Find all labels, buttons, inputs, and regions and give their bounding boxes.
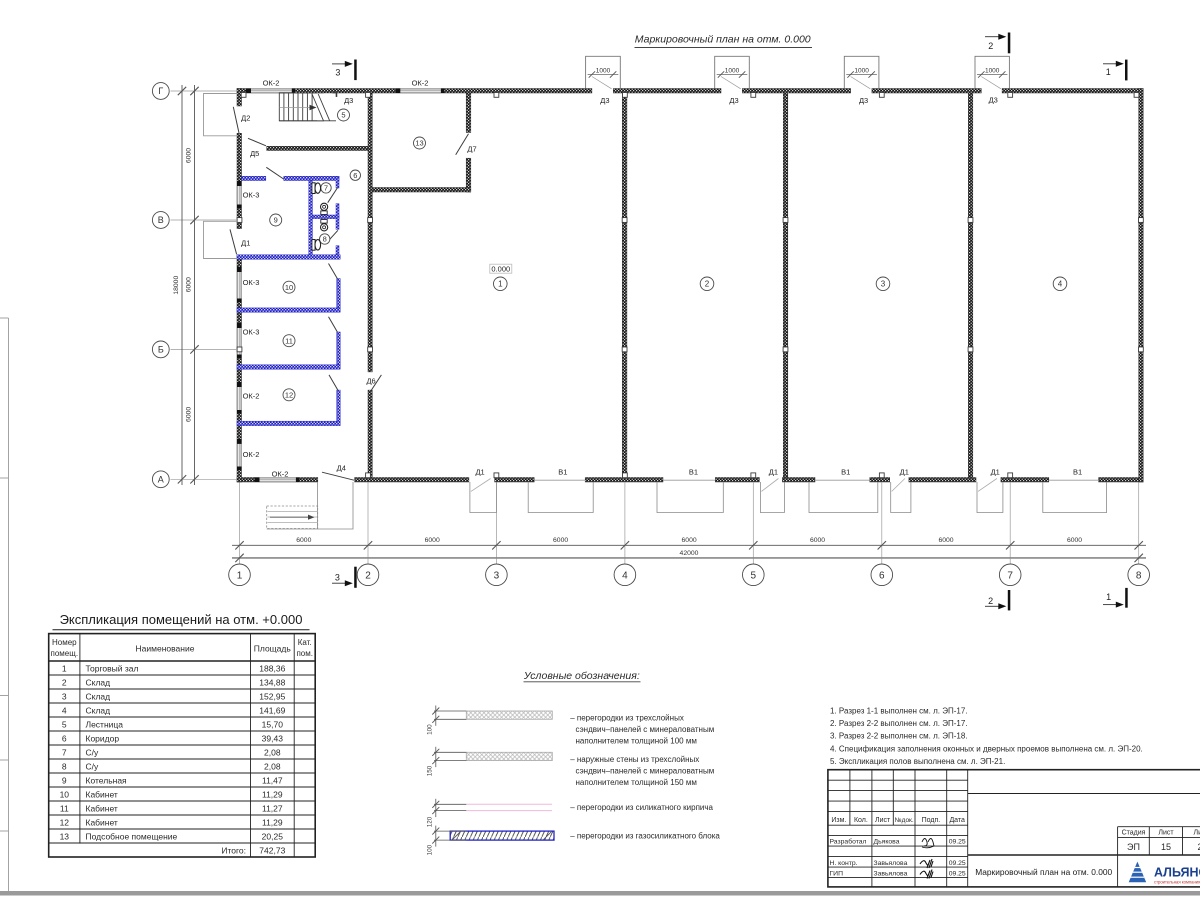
svg-text:С/у: С/у: [86, 748, 100, 758]
svg-text:Склад: Склад: [86, 678, 111, 688]
svg-text:помещ.: помещ.: [51, 649, 79, 658]
svg-text:5. Экспликация полов выполнена: 5. Экспликация полов выполнена см. л. ЭП…: [830, 757, 1005, 766]
svg-text:строительная компания: строительная компания: [1154, 880, 1200, 885]
svg-text:15,70: 15,70: [262, 720, 284, 730]
svg-text:1: 1: [498, 280, 503, 289]
svg-text:Кат.: Кат.: [298, 638, 312, 647]
svg-text:134,88: 134,88: [259, 678, 285, 688]
svg-text:5: 5: [341, 111, 345, 120]
svg-text:6000: 6000: [186, 148, 193, 163]
svg-text:Кабинет: Кабинет: [86, 790, 118, 800]
svg-text:С/у: С/у: [86, 762, 100, 772]
svg-text:188,36: 188,36: [259, 664, 285, 674]
svg-text:Дата: Дата: [949, 817, 965, 824]
svg-text:1: 1: [237, 570, 243, 581]
svg-text:8: 8: [62, 762, 67, 772]
svg-text:Г: Г: [158, 86, 163, 96]
svg-text:В1: В1: [689, 467, 698, 476]
svg-text:ОК-2: ОК-2: [243, 391, 260, 400]
svg-text:11: 11: [285, 336, 293, 345]
svg-text:ОК-2: ОК-2: [243, 450, 260, 459]
svg-text:№док.: №док.: [895, 817, 914, 824]
svg-text:Д1: Д1: [991, 467, 1000, 476]
svg-text:Д1: Д1: [475, 467, 484, 476]
svg-text:1000: 1000: [854, 67, 869, 74]
svg-text:Подп.: Подп.: [922, 817, 941, 824]
svg-text:1: 1: [1106, 592, 1111, 602]
svg-text:2: 2: [62, 678, 67, 688]
svg-text:1: 1: [1106, 67, 1111, 77]
svg-text:9: 9: [62, 776, 67, 786]
svg-text:09.25: 09.25: [949, 860, 966, 867]
svg-text:АЛЬЯНС: АЛЬЯНС: [1154, 866, 1200, 880]
svg-text:10: 10: [285, 283, 293, 292]
svg-text:Д3: Д3: [600, 96, 609, 105]
svg-text:Лестница: Лестница: [86, 720, 124, 730]
svg-text:1000: 1000: [725, 67, 740, 74]
svg-text:Листов: Листов: [1194, 829, 1200, 836]
svg-text:2,08: 2,08: [264, 762, 281, 772]
svg-text:Итого:: Итого:: [221, 846, 246, 856]
svg-text:1000: 1000: [985, 67, 1000, 74]
svg-text:Номер: Номер: [52, 638, 77, 647]
svg-text:152,95: 152,95: [259, 692, 285, 702]
svg-text:В: В: [158, 215, 164, 225]
svg-text:12: 12: [285, 391, 293, 400]
svg-text:пом.: пом.: [296, 649, 313, 658]
svg-text:7: 7: [324, 184, 328, 193]
svg-text:Лист: Лист: [875, 817, 891, 824]
svg-text:6000: 6000: [682, 537, 697, 544]
svg-text:В1: В1: [1073, 467, 1082, 476]
svg-text:6: 6: [879, 570, 885, 581]
svg-text:ОК-2: ОК-2: [412, 79, 429, 88]
svg-text:100: 100: [427, 724, 434, 735]
svg-text:6: 6: [353, 171, 357, 180]
svg-text:наполнителем толщиной 100 мм: наполнителем толщиной 100 мм: [576, 737, 697, 746]
svg-text:6000: 6000: [553, 537, 568, 544]
svg-text:Д6: Д6: [366, 376, 375, 385]
svg-text:Коридор: Коридор: [86, 734, 120, 744]
svg-text:Условные обозначения:: Условные обозначения:: [523, 670, 640, 682]
svg-text:В1: В1: [841, 467, 850, 476]
svg-text:А: А: [158, 475, 164, 485]
svg-text:Разработал: Разработал: [830, 838, 867, 846]
svg-text:11,29: 11,29: [262, 818, 283, 828]
svg-text:0.000: 0.000: [491, 265, 510, 274]
svg-text:Д5: Д5: [250, 149, 259, 158]
svg-text:Лист: Лист: [1158, 829, 1174, 836]
svg-text:ОК-3: ОК-3: [243, 327, 260, 336]
svg-text:8: 8: [1136, 570, 1142, 581]
svg-text:742,73: 742,73: [259, 846, 285, 856]
svg-text:11: 11: [60, 804, 69, 814]
svg-text:– перегородки из трехслойных: – перегородки из трехслойных: [570, 714, 684, 723]
svg-text:Кабинет: Кабинет: [86, 804, 118, 814]
svg-text:6000: 6000: [425, 537, 440, 544]
svg-text:3: 3: [335, 572, 340, 582]
svg-text:3: 3: [335, 68, 340, 78]
svg-text:2: 2: [705, 280, 710, 289]
svg-text:6000: 6000: [1067, 537, 1082, 544]
svg-text:Д1: Д1: [900, 467, 909, 476]
svg-text:ОК-2: ОК-2: [272, 470, 289, 479]
svg-text:12: 12: [60, 818, 70, 828]
svg-text:Кол.: Кол.: [854, 817, 868, 824]
svg-text:5: 5: [751, 570, 757, 581]
svg-text:3: 3: [494, 570, 500, 581]
svg-text:Площадь: Площадь: [254, 644, 292, 654]
svg-text:7: 7: [1007, 570, 1013, 581]
svg-text:Котельная: Котельная: [86, 776, 128, 786]
svg-text:Склад: Склад: [86, 692, 111, 702]
svg-text:1: 1: [62, 664, 67, 674]
svg-text:– перегородки из силикатного к: – перегородки из силикатного кирпича: [570, 803, 713, 812]
svg-text:2: 2: [988, 41, 993, 51]
svg-text:Подсобное помещение: Подсобное помещение: [86, 832, 178, 842]
svg-text:13: 13: [60, 832, 70, 842]
svg-text:ОК-2: ОК-2: [263, 79, 280, 88]
svg-text:2: 2: [988, 596, 993, 606]
svg-text:39,43: 39,43: [262, 734, 284, 744]
svg-text:В1: В1: [558, 467, 567, 476]
svg-text:4: 4: [622, 570, 628, 581]
svg-text:Н. контр.: Н. контр.: [830, 860, 858, 867]
svg-text:4: 4: [1058, 280, 1063, 289]
svg-text:ОК-3: ОК-3: [243, 278, 260, 287]
svg-text:42000: 42000: [680, 550, 699, 557]
svg-text:20,25: 20,25: [262, 832, 284, 842]
svg-text:ЭП: ЭП: [1127, 842, 1140, 852]
svg-text:3. Разрез 2-2 выполнен см. л.: 3. Разрез 2-2 выполнен см. л. ЭП-18.: [830, 732, 968, 741]
svg-text:1000: 1000: [596, 67, 611, 74]
svg-text:ГИП: ГИП: [830, 870, 844, 877]
svg-text:наполнителем толщиной 150 мм: наполнителем толщиной 150 мм: [576, 778, 697, 787]
svg-text:Б: Б: [158, 345, 164, 355]
svg-text:09.25: 09.25: [949, 839, 966, 846]
svg-text:4: 4: [62, 706, 67, 716]
svg-text:Кабинет: Кабинет: [86, 818, 118, 828]
svg-text:– наружные стены из трехслойны: – наружные стены из трехслойных: [570, 755, 699, 764]
svg-text:Д3: Д3: [729, 96, 738, 105]
svg-text:Д3: Д3: [344, 96, 353, 105]
svg-text:Торговый зал: Торговый зал: [86, 664, 139, 674]
svg-text:Наименование: Наименование: [136, 644, 195, 654]
svg-text:Д3: Д3: [859, 96, 868, 105]
svg-text:18000: 18000: [173, 276, 180, 295]
svg-text:Завьялова: Завьялова: [874, 860, 908, 867]
svg-text:5: 5: [62, 720, 67, 730]
svg-text:11,29: 11,29: [262, 790, 283, 800]
svg-text:Дьякова: Дьякова: [874, 839, 900, 846]
svg-text:3: 3: [62, 692, 67, 702]
svg-text:100: 100: [427, 844, 434, 855]
svg-text:Завьялова: Завьялова: [874, 870, 908, 877]
svg-text:8: 8: [323, 235, 327, 244]
svg-text:3: 3: [881, 280, 886, 289]
svg-text:6000: 6000: [186, 277, 193, 292]
svg-text:Д2: Д2: [241, 114, 250, 123]
svg-text:09.25: 09.25: [949, 870, 966, 877]
svg-text:Маркировочный план на отм. 0.0: Маркировочный план на отм. 0.000: [975, 867, 1112, 877]
svg-text:Д1: Д1: [241, 238, 250, 247]
svg-text:Экспликация помещений на отм.: Экспликация помещений на отм. +0.000: [60, 612, 303, 627]
svg-text:сэндвич–панелей с минераловатн: сэндвич–панелей с минераловатным: [576, 725, 715, 734]
svg-text:7: 7: [62, 748, 67, 758]
svg-text:ОК-3: ОК-3: [243, 190, 260, 199]
svg-text:4. Спецификация заполнения око: 4. Спецификация заполнения оконных и две…: [830, 744, 1143, 753]
svg-text:2,08: 2,08: [264, 748, 281, 758]
svg-text:6000: 6000: [938, 537, 953, 544]
svg-text:10: 10: [60, 790, 70, 800]
svg-text:6000: 6000: [810, 537, 825, 544]
svg-text:2: 2: [365, 570, 371, 581]
svg-text:1. Разрез 1-1 выполнен см. л.: 1. Разрез 1-1 выполнен см. л. ЭП-17.: [830, 707, 968, 716]
svg-text:сэндвич–панелей с минераловатн: сэндвич–панелей с минераловатным: [576, 766, 715, 775]
svg-text:120: 120: [427, 816, 434, 827]
svg-text:141,69: 141,69: [259, 706, 285, 716]
svg-text:Д7: Д7: [467, 144, 476, 153]
svg-text:11,27: 11,27: [262, 804, 283, 814]
svg-text:9: 9: [274, 216, 278, 225]
svg-text:Д4: Д4: [337, 464, 346, 473]
svg-text:– перегородки из газосиликатно: – перегородки из газосиликатного блока: [570, 832, 720, 841]
svg-text:11,47: 11,47: [262, 776, 283, 786]
svg-text:150: 150: [427, 765, 434, 776]
svg-text:13: 13: [415, 139, 423, 148]
svg-text:6000: 6000: [186, 407, 193, 422]
svg-text:Изм.: Изм.: [831, 817, 846, 824]
svg-text:15: 15: [1161, 842, 1171, 852]
svg-text:Стадия: Стадия: [1122, 829, 1146, 836]
svg-text:Д3: Д3: [989, 96, 998, 105]
svg-text:Д1: Д1: [769, 467, 778, 476]
svg-text:Маркировочный план на отм. 0.0: Маркировочный план на отм. 0.000: [635, 33, 811, 45]
svg-text:6: 6: [62, 734, 67, 744]
svg-text:2. Разрез 2-2 выполнен см. л.: 2. Разрез 2-2 выполнен см. л. ЭП-17.: [830, 719, 968, 728]
svg-text:Склад: Склад: [86, 706, 111, 716]
svg-text:6000: 6000: [296, 537, 311, 544]
